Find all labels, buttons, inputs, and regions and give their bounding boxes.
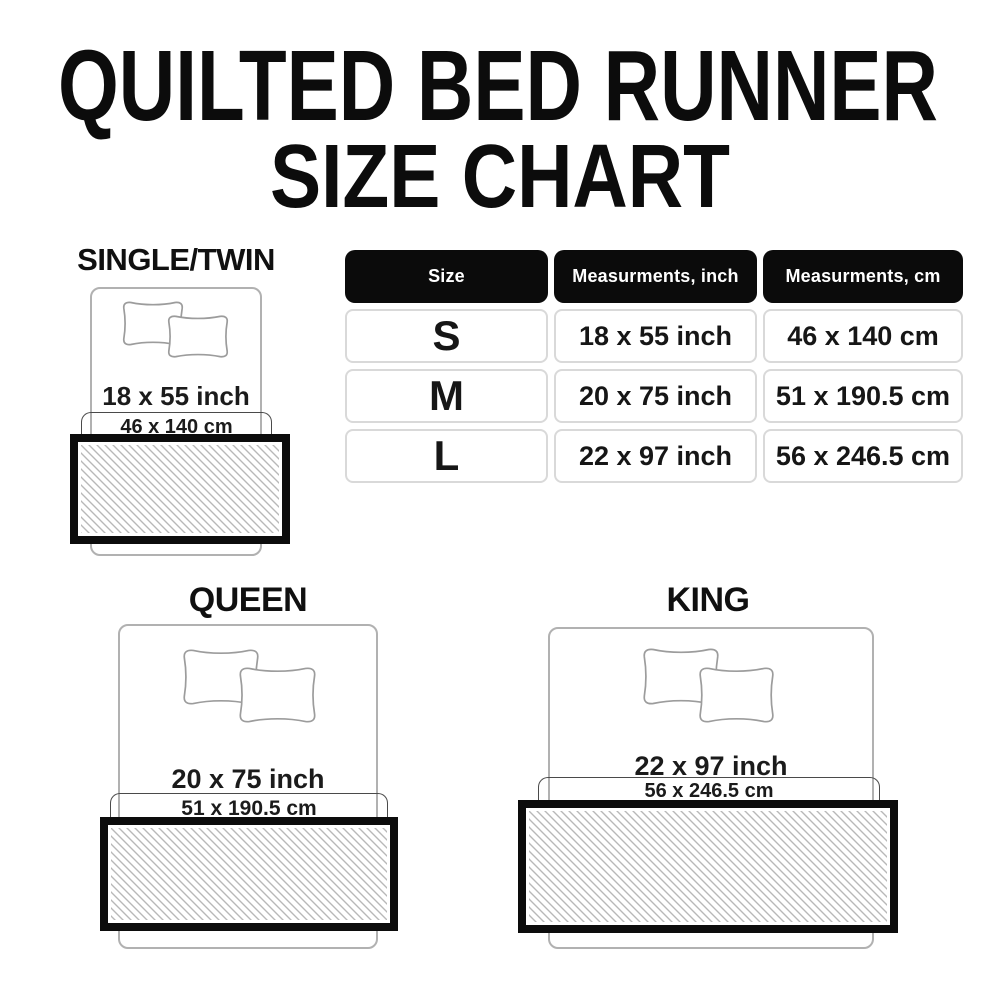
diagram-label-king: KING [508, 583, 908, 619]
title-line-2: SIZE CHART [270, 127, 730, 220]
header-cell-inch: Measurments, inch [554, 250, 757, 303]
pillow-icon [693, 664, 780, 726]
pillow-icon [163, 313, 233, 360]
table-cell-size-s: S [345, 309, 548, 363]
table-cell-cm-s: 46 x 140 cm [763, 309, 963, 363]
size-chart-poster: QUILTED BED RUNNER SIZE CHART Size Measu… [0, 0, 1000, 1000]
header-cell-cm: Measurments, cm [763, 250, 963, 303]
size-table: Size Measurments, inch Measurments, cm S… [345, 250, 963, 483]
dimension-inch-label: 18 x 55 inch [90, 383, 262, 409]
diagram-single-twin: SINGLE/TWIN 18 x 55 inch 46 x 140 cm [60, 240, 300, 570]
table-cell-inch-m: 20 x 75 inch [554, 369, 757, 423]
table-cell-size-l: L [345, 429, 548, 483]
diagram-label-queen: QUEEN [90, 583, 406, 619]
dimension-inch-label: 22 x 97 inch [548, 753, 874, 780]
dimension-inch-label: 20 x 75 inch [118, 766, 378, 793]
diagram-queen: QUEEN 20 x 75 inch 51 x 190.5 cm [90, 580, 410, 955]
header-cell-size: Size [345, 250, 548, 303]
table-cell-cm-m: 51 x 190.5 cm [763, 369, 963, 423]
pillow-icon [233, 664, 322, 726]
dimension-cm-label: 56 x 246.5 cm [539, 778, 879, 801]
diagram-label-single-twin: SINGLE/TWIN [60, 244, 292, 277]
poster-title: QUILTED BED RUNNER SIZE CHART [0, 30, 1000, 220]
table-cell-cm-l: 56 x 246.5 cm [763, 429, 963, 483]
table-cell-size-m: M [345, 369, 548, 423]
bed-runner-swatch [100, 817, 398, 931]
diagram-king: KING 22 x 97 inch 56 x 246.5 cm [508, 580, 908, 955]
table-cell-inch-l: 22 x 97 inch [554, 429, 757, 483]
title-line-1: QUILTED BED RUNNER [58, 30, 938, 142]
dimension-cm-label: 51 x 190.5 cm [111, 794, 387, 819]
bed-runner-swatch [70, 434, 290, 544]
table-cell-inch-s: 18 x 55 inch [554, 309, 757, 363]
bed-runner-swatch [518, 800, 898, 933]
